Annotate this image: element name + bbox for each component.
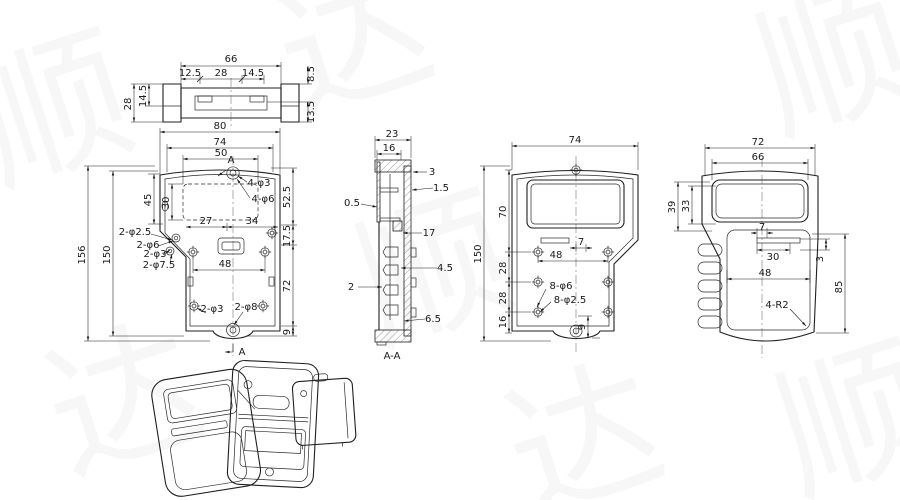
label-4-d3: 4-φ3	[248, 178, 271, 189]
iso-back-shell	[227, 360, 319, 488]
dim-45: 45	[143, 194, 154, 207]
dim-50: 50	[215, 148, 228, 159]
dim-12-5: 12.5	[179, 68, 201, 79]
label-2-d7-5: 2-φ7.5	[143, 260, 175, 271]
dim-28b: 28	[498, 292, 509, 305]
label-8-d6: 8-φ6	[550, 281, 573, 292]
dim-74: 74	[214, 137, 227, 148]
dim-2: 2	[348, 282, 354, 293]
dim-70: 70	[498, 206, 509, 219]
dim-9: 9	[577, 324, 588, 330]
dim-13-5: 13.5	[306, 101, 317, 123]
dim-23: 23	[386, 129, 399, 140]
dim-150: 150	[473, 244, 484, 263]
dim-16: 16	[383, 143, 396, 154]
dim-left-14-5: 14.5	[138, 85, 149, 107]
dim-28: 28	[215, 68, 228, 79]
dim-17-5: 17.5	[282, 225, 293, 247]
dim-30: 30	[161, 197, 172, 210]
label-2-d3-bottom: 2-φ3	[201, 304, 224, 315]
dim-14-5: 14.5	[242, 68, 264, 79]
dim-66: 66	[225, 54, 238, 65]
watermark-glyph: 达	[486, 336, 682, 500]
section-title: A-A	[384, 351, 401, 362]
label-2-d2-5: 2-φ2.5	[119, 227, 151, 238]
label-2-d3: 2-φ3	[144, 249, 167, 260]
dim-6-5: 6.5	[425, 314, 441, 325]
watermark-glyph: 顺	[756, 316, 900, 500]
engineering-drawing: 顺 达 顺 达 顺 达 顺 66 12.5 28 14.5	[0, 0, 900, 500]
dim-7: 7	[578, 237, 584, 248]
screw-boss	[259, 246, 271, 258]
screw-boss	[187, 246, 199, 258]
label-8-d2-5: 8-φ2.5	[554, 295, 586, 306]
section-marker-bottom: A	[239, 347, 246, 358]
dim-3: 3	[815, 256, 826, 262]
watermark-glyph: 顺	[0, 6, 152, 218]
dim-74: 74	[569, 135, 582, 146]
side-view-outline	[698, 158, 818, 358]
dim-48: 48	[759, 268, 772, 279]
dim-48: 48	[550, 250, 563, 261]
dim-7: 7	[759, 222, 765, 233]
side-view-dimensions: 72 66 39 33 7 30 3 48 4-R2	[667, 137, 849, 333]
watermark-glyph: 达	[256, 0, 452, 147]
screw-boss	[602, 276, 614, 288]
screw-boss	[532, 276, 544, 288]
dim-34: 34	[246, 216, 259, 227]
dim-39: 39	[667, 201, 678, 214]
dim-52-5: 52.5	[282, 186, 293, 208]
back-view-outline	[512, 156, 638, 352]
label-4-d6: 4-φ6	[252, 194, 275, 205]
label-4-r2: 4-R2	[765, 300, 788, 311]
top-view-outline	[163, 78, 299, 128]
dim-156: 156	[77, 245, 88, 264]
dim-80: 80	[214, 121, 227, 132]
dim-72: 72	[752, 137, 765, 148]
dim-72: 72	[282, 280, 293, 293]
dim-1-5: 1.5	[433, 183, 449, 194]
dim-33: 33	[681, 200, 692, 213]
dim-0-5: 0.5	[344, 198, 360, 209]
dim-16: 16	[498, 316, 509, 329]
section-marker-top: A	[228, 155, 235, 166]
screw-boss	[602, 306, 614, 318]
dim-9: 9	[282, 329, 293, 335]
label-2-d8: 2-φ8	[235, 302, 258, 313]
dim-4-5: 4.5	[437, 263, 453, 274]
dim-17: 17	[423, 228, 436, 239]
screw-boss	[532, 306, 544, 318]
dim-66: 66	[752, 152, 765, 163]
side-view: 72 66 39 33 7 30 3 48 4-R2	[667, 137, 849, 358]
dim-8-5: 8.5	[306, 66, 317, 82]
dim-48: 48	[219, 259, 232, 270]
dim-28a: 28	[498, 262, 509, 275]
dim-3: 3	[429, 167, 435, 178]
dim-30: 30	[767, 252, 780, 263]
screw-boss	[257, 300, 269, 312]
dim-27: 27	[200, 216, 213, 227]
screw-boss	[266, 227, 278, 239]
dim-85: 85	[834, 281, 845, 294]
dim-left-28: 28	[123, 98, 134, 111]
dim-150: 150	[102, 245, 113, 264]
